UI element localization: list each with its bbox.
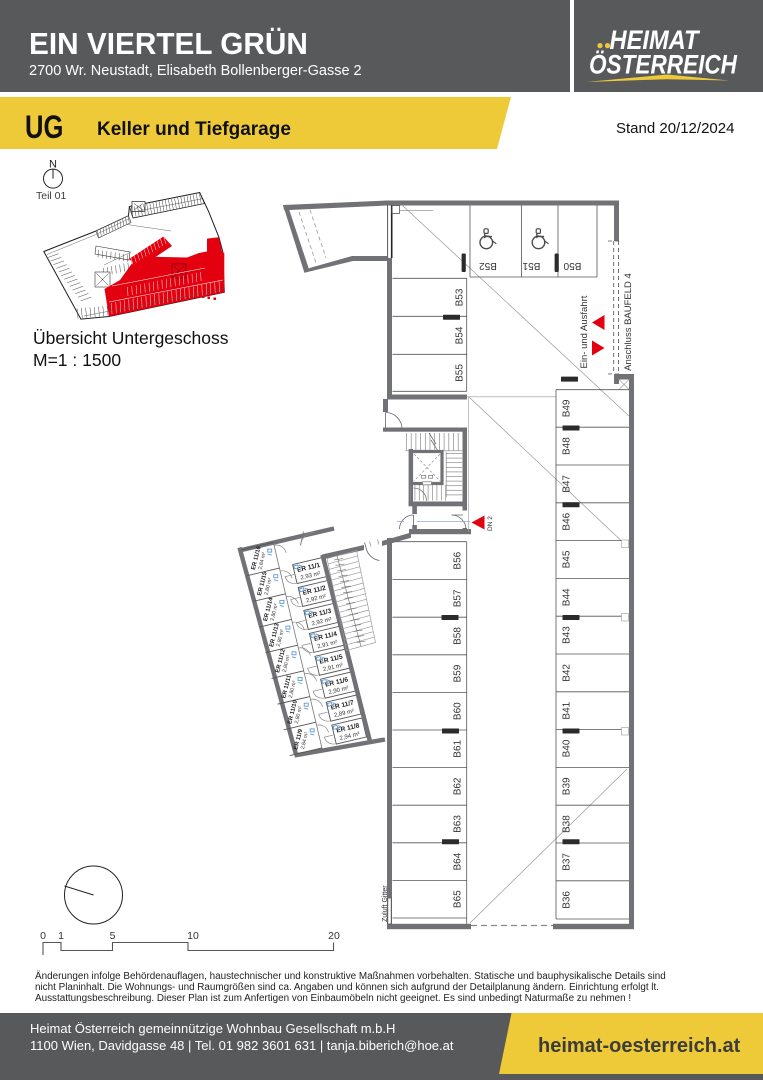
- svg-text:B54: B54: [455, 326, 466, 344]
- svg-text:B64: B64: [453, 852, 464, 870]
- svg-text:DN 2: DN 2: [487, 516, 494, 531]
- svg-text:Ein- und Ausfahrt: Ein- und Ausfahrt: [579, 295, 590, 368]
- svg-text:B55: B55: [455, 364, 466, 382]
- svg-text:B63: B63: [453, 815, 464, 833]
- svg-text:B62: B62: [453, 777, 464, 795]
- svg-text:1: 1: [58, 930, 64, 942]
- svg-text:B59: B59: [453, 664, 464, 682]
- svg-text:B38: B38: [562, 815, 573, 833]
- svg-text:Zuluft Gitter: Zuluft Gitter: [382, 885, 389, 922]
- svg-text:B53: B53: [455, 288, 466, 306]
- svg-text:B39: B39: [562, 777, 573, 795]
- svg-text:M=1 : 1500: M=1 : 1500: [33, 350, 121, 370]
- svg-text:B61: B61: [453, 739, 464, 757]
- svg-text:0: 0: [40, 930, 46, 942]
- svg-text:B51: B51: [522, 260, 540, 271]
- svg-text:10: 10: [187, 930, 199, 942]
- svg-text:B45: B45: [562, 550, 573, 568]
- svg-text:B52: B52: [479, 260, 497, 271]
- svg-text:B57: B57: [453, 589, 464, 607]
- svg-text:B36: B36: [562, 891, 573, 909]
- svg-text:B46: B46: [562, 512, 573, 530]
- svg-text:B49: B49: [562, 399, 573, 417]
- svg-text:B60: B60: [453, 702, 464, 720]
- svg-text:B42: B42: [562, 664, 573, 682]
- svg-text:B58: B58: [453, 627, 464, 645]
- svg-text:B44: B44: [562, 588, 573, 606]
- svg-text:B50: B50: [563, 260, 581, 271]
- svg-text:B48: B48: [562, 437, 573, 455]
- svg-text:5: 5: [110, 930, 116, 942]
- svg-text:B47: B47: [562, 475, 573, 493]
- svg-text:Teil 01: Teil 01: [36, 190, 67, 202]
- svg-text:B43: B43: [562, 626, 573, 644]
- svg-text:B65: B65: [453, 890, 464, 908]
- svg-text:Übersicht Untergeschoss: Übersicht Untergeschoss: [33, 328, 229, 348]
- svg-text:B37: B37: [562, 853, 573, 871]
- svg-text:heimat-oesterreich.at: heimat-oesterreich.at: [538, 1035, 741, 1057]
- svg-text:B41: B41: [562, 701, 573, 719]
- svg-text:20: 20: [328, 930, 340, 942]
- svg-text:Anschluss BAUFELD 4: Anschluss BAUFELD 4: [623, 273, 634, 371]
- svg-text:N: N: [49, 159, 57, 171]
- svg-text:B56: B56: [453, 551, 464, 569]
- svg-text:B40: B40: [562, 739, 573, 757]
